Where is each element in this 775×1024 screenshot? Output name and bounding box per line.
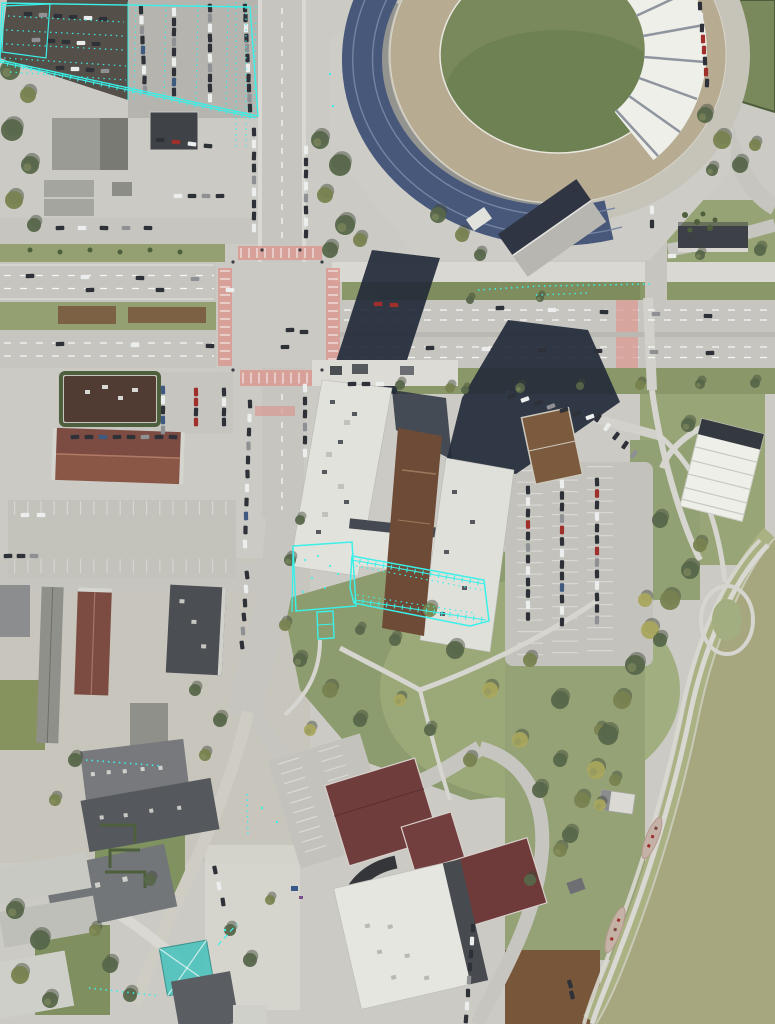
parked-car (216, 194, 225, 198)
parked-car (304, 146, 308, 155)
tree (652, 512, 668, 528)
parked-car (243, 526, 247, 535)
parked-car (426, 346, 435, 350)
survey-point (332, 105, 334, 107)
tree (574, 792, 590, 808)
parked-car (208, 84, 213, 93)
parked-car (595, 570, 599, 579)
industrial-dark-building (166, 585, 227, 676)
parked-car (374, 302, 383, 306)
parked-car (526, 589, 530, 598)
parked-car (172, 18, 176, 27)
tree (424, 724, 436, 736)
tree (523, 653, 537, 667)
parked-car (161, 386, 165, 395)
parked-car (208, 94, 212, 103)
parked-car (21, 513, 30, 517)
parked-car (208, 54, 213, 63)
parked-car (144, 226, 153, 230)
parked-car (113, 435, 122, 439)
tree (30, 930, 50, 950)
parked-car (650, 206, 654, 215)
parked-car (226, 288, 235, 292)
map-viewport[interactable] (0, 0, 775, 1024)
tree (20, 87, 36, 103)
parked-car (206, 344, 215, 348)
tree (322, 682, 338, 698)
parked-car (464, 1015, 469, 1024)
survey-point (276, 821, 278, 823)
parked-car (469, 950, 474, 959)
tree (638, 593, 652, 607)
parked-car (704, 314, 713, 318)
survey-point (224, 929, 226, 931)
parked-car (650, 350, 659, 354)
parked-car (39, 13, 48, 17)
parked-car (194, 408, 198, 417)
parked-car (526, 532, 530, 541)
parked-car (303, 410, 307, 419)
parked-car (54, 14, 63, 18)
survey-point (324, 587, 326, 589)
parked-car (246, 74, 250, 83)
parked-car (526, 497, 530, 506)
parked-car (247, 94, 251, 103)
parked-car (56, 66, 65, 70)
parked-car (245, 470, 249, 479)
parked-car (99, 17, 108, 21)
parked-car (47, 39, 56, 43)
parked-car (62, 40, 71, 44)
parked-car (155, 435, 164, 439)
tree (713, 131, 731, 149)
tree (317, 187, 333, 203)
parked-car (595, 512, 599, 521)
tree (551, 691, 569, 709)
parked-car (17, 554, 26, 558)
parked-car (69, 15, 78, 19)
parked-car (241, 627, 246, 636)
parked-car (100, 226, 109, 230)
parked-car (222, 418, 226, 427)
parked-car (560, 618, 564, 627)
parked-car (526, 601, 530, 610)
parked-car (701, 35, 705, 44)
parked-car (85, 435, 94, 439)
tree (279, 619, 291, 631)
parked-car (141, 435, 150, 439)
parked-car (172, 58, 176, 67)
parked-car (482, 347, 491, 351)
tree (463, 753, 477, 767)
parked-car (560, 503, 564, 512)
parked-car (56, 342, 65, 346)
parked-car (304, 206, 308, 215)
parked-car (77, 41, 86, 45)
tree (524, 874, 536, 886)
parked-car (156, 138, 165, 143)
parked-car (172, 8, 176, 17)
parked-car (222, 398, 226, 407)
tree (598, 725, 618, 745)
tree (732, 157, 748, 173)
parked-car (652, 312, 661, 316)
restaurant-building (64, 376, 156, 422)
tree (461, 386, 469, 394)
tree (635, 380, 645, 390)
parked-car (252, 176, 256, 185)
parked-car (560, 526, 564, 535)
parked-car (202, 194, 211, 198)
parked-car (560, 583, 564, 592)
parked-car (194, 398, 198, 407)
parked-car (600, 310, 609, 314)
parked-car (188, 194, 197, 198)
parked-car (131, 343, 140, 347)
aerial-map-canvas[interactable] (0, 0, 775, 1024)
parked-car (594, 349, 603, 353)
survey-point (261, 807, 263, 809)
parked-car (471, 924, 475, 933)
parked-car (466, 989, 470, 998)
parked-car (141, 46, 145, 55)
parked-car (247, 84, 251, 93)
parked-car (81, 275, 90, 279)
parked-car (208, 24, 212, 33)
parked-car (303, 436, 307, 445)
tree (68, 753, 82, 767)
tree (123, 988, 137, 1002)
tree (613, 691, 631, 709)
parked-car (699, 13, 703, 22)
parked-car (243, 540, 247, 549)
tree (466, 296, 474, 304)
intersection (216, 262, 342, 370)
parked-car (706, 351, 715, 355)
tree (355, 625, 365, 635)
parked-car (252, 128, 256, 137)
parked-car (245, 484, 249, 493)
parked-car (142, 66, 146, 75)
parked-car (172, 48, 176, 57)
tree (144, 874, 156, 886)
parked-car (122, 226, 131, 230)
parked-car (526, 486, 530, 495)
parked-car (467, 976, 472, 985)
parked-car (548, 308, 557, 312)
parked-car (4, 554, 13, 558)
parked-car (140, 36, 144, 45)
tree (389, 634, 401, 646)
parked-car (172, 38, 176, 47)
parked-car (304, 182, 308, 191)
parked-car (595, 478, 599, 487)
parked-car (702, 46, 706, 55)
parked-car (286, 328, 295, 332)
parked-car (252, 152, 256, 161)
parked-car (245, 44, 249, 53)
parked-car (169, 435, 178, 439)
parked-car (244, 512, 248, 521)
parked-car (538, 348, 547, 352)
parked-car (139, 6, 143, 15)
tree (553, 753, 567, 767)
tree (27, 218, 41, 232)
parked-car (248, 400, 252, 409)
parked-car (560, 560, 564, 569)
parked-car (304, 218, 308, 227)
tree (576, 382, 584, 390)
parked-car (252, 212, 256, 221)
parked-car (303, 423, 307, 432)
tree (749, 139, 761, 151)
parked-car (560, 595, 564, 604)
tree (189, 684, 201, 696)
parked-car (208, 34, 213, 43)
parked-car (303, 449, 307, 458)
parked-car (700, 24, 704, 33)
parked-car (526, 555, 530, 564)
parked-car (595, 593, 599, 602)
parked-car (139, 16, 143, 25)
parked-car (470, 937, 474, 946)
parked-car (252, 224, 256, 233)
parked-car (526, 612, 530, 621)
tree (609, 774, 621, 786)
parked-car (172, 78, 176, 87)
parked-car (304, 170, 308, 179)
survey-point (337, 573, 339, 575)
parked-car (142, 76, 146, 85)
parked-car (595, 616, 599, 625)
parked-car (37, 513, 46, 517)
parked-car (140, 26, 144, 35)
tree (243, 953, 257, 967)
tree (660, 590, 680, 610)
main-road-west-north-lanes (0, 262, 232, 302)
survey-point (302, 591, 304, 593)
tree (693, 538, 707, 552)
parked-car (174, 194, 183, 198)
parked-car (161, 426, 165, 435)
parked-car (244, 498, 248, 507)
parked-car (560, 537, 564, 546)
parked-car (560, 549, 564, 558)
parked-car (156, 288, 165, 292)
parked-car (252, 188, 256, 197)
parked-car (244, 585, 249, 594)
parked-car (243, 599, 248, 608)
parked-car (161, 416, 165, 425)
parked-car (204, 144, 213, 149)
tree (750, 378, 760, 388)
tree (353, 233, 367, 247)
parked-car (465, 1002, 469, 1011)
tree (754, 244, 766, 256)
parked-car (560, 572, 564, 581)
parked-car (32, 38, 41, 42)
parked-car (526, 578, 530, 587)
parked-car (222, 408, 226, 417)
parked-car (71, 435, 80, 439)
tree (102, 957, 118, 973)
parked-car (161, 396, 165, 405)
parked-car (194, 418, 198, 427)
parked-car (86, 288, 95, 292)
parked-car (243, 14, 247, 23)
parked-car (560, 491, 564, 500)
survey-point (329, 565, 331, 567)
parked-car (247, 414, 251, 423)
parked-car (191, 277, 200, 281)
parked-car (56, 226, 65, 230)
tree (653, 633, 667, 647)
parked-car (208, 4, 213, 13)
parked-car (560, 480, 564, 489)
parked-car (526, 509, 530, 518)
parked-car (222, 388, 226, 397)
tree (395, 380, 405, 390)
parked-car (161, 406, 165, 415)
parked-car (172, 140, 181, 145)
tree (455, 228, 469, 242)
tree (445, 383, 455, 393)
parked-car (703, 57, 707, 66)
tree (532, 782, 548, 798)
parked-car (362, 382, 371, 386)
parked-car (595, 558, 599, 567)
parked-car (172, 28, 176, 37)
parked-car (595, 489, 599, 498)
parked-car (281, 345, 290, 349)
light-parking-lot (128, 0, 258, 118)
parked-car (71, 67, 80, 71)
parked-car (595, 604, 599, 613)
parked-car (30, 554, 39, 558)
parked-car (300, 330, 309, 334)
parked-car (704, 68, 708, 77)
parked-car (304, 194, 308, 203)
parked-car (172, 88, 176, 97)
parked-car (698, 2, 702, 11)
tree (5, 191, 23, 209)
parked-car (526, 520, 530, 529)
parked-car (252, 140, 256, 149)
parked-car (668, 254, 677, 258)
parked-car (560, 606, 564, 615)
parked-car (208, 74, 212, 83)
south-street (262, 368, 304, 518)
parked-car (390, 303, 399, 307)
parked-car (26, 274, 35, 278)
parked-car (247, 428, 251, 437)
parked-car (194, 388, 198, 397)
parked-car (348, 382, 357, 386)
parked-car (172, 68, 176, 77)
parked-car (101, 69, 110, 73)
survey-point (311, 577, 313, 579)
parked-car (208, 14, 212, 23)
parked-car (92, 42, 101, 46)
tree (213, 713, 227, 727)
parked-car (141, 56, 145, 65)
parked-car (208, 64, 212, 73)
parked-car (127, 435, 136, 439)
parked-car (376, 382, 385, 386)
parked-car (241, 613, 246, 622)
tree (329, 154, 351, 176)
tree (11, 966, 29, 984)
parked-car (78, 226, 87, 230)
parked-car (303, 397, 307, 406)
parked-car (526, 566, 530, 575)
tree (322, 242, 338, 258)
parked-car (252, 200, 256, 209)
parked-car (86, 68, 95, 72)
tree (1, 119, 23, 141)
tree (474, 249, 486, 261)
parked-car (650, 220, 654, 229)
parked-car (560, 514, 564, 523)
parked-car (248, 104, 252, 113)
parked-car (252, 164, 256, 173)
tree (446, 641, 464, 659)
parked-car (246, 456, 250, 465)
parked-car (468, 963, 472, 972)
parked-car (304, 158, 308, 167)
parked-car (595, 535, 599, 544)
parked-car (303, 384, 307, 393)
parked-car (99, 435, 108, 439)
parked-car (304, 230, 308, 239)
tree (353, 713, 367, 727)
parked-car (246, 442, 250, 451)
survey-point (304, 559, 306, 561)
survey-point (329, 73, 331, 75)
parked-car (24, 12, 33, 16)
parked-car (136, 276, 145, 280)
parked-car (595, 547, 599, 556)
parked-car (705, 79, 709, 88)
parked-car (496, 306, 505, 310)
parked-car (595, 501, 599, 510)
tree (295, 515, 305, 525)
parked-car (595, 581, 599, 590)
parked-car (595, 524, 599, 533)
survey-point (317, 555, 319, 557)
parked-car (526, 543, 530, 552)
parked-car (208, 44, 212, 53)
